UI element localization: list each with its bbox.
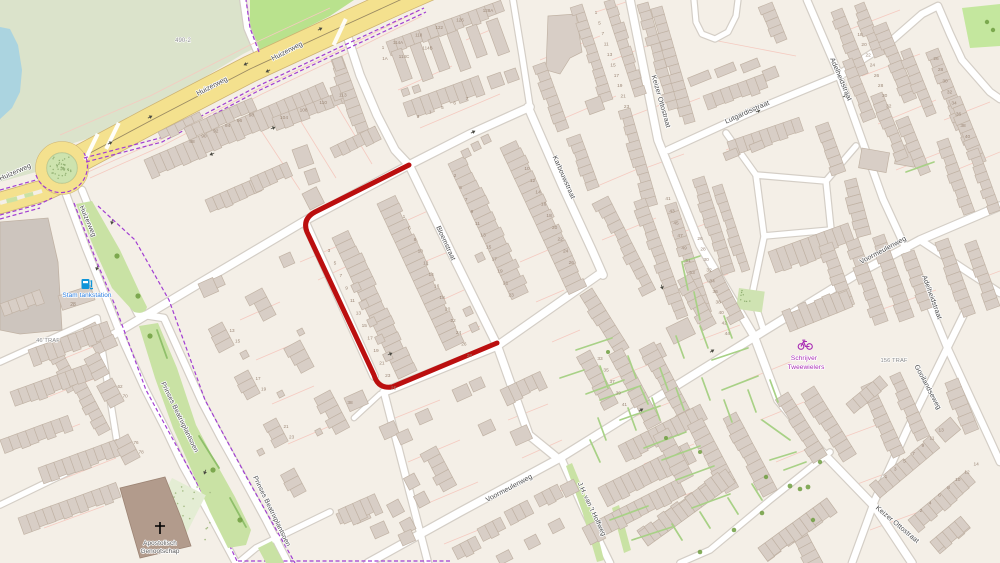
svg-text:41: 41 bbox=[665, 196, 671, 202]
svg-text:94: 94 bbox=[225, 123, 231, 129]
svg-text:114B: 114B bbox=[422, 45, 432, 50]
svg-text:113: 113 bbox=[339, 92, 347, 98]
svg-text:2: 2 bbox=[920, 508, 923, 514]
svg-text:70: 70 bbox=[123, 394, 129, 399]
svg-text:20: 20 bbox=[552, 225, 558, 231]
svg-text:118: 118 bbox=[415, 33, 423, 38]
svg-text:1: 1 bbox=[595, 10, 598, 16]
svg-text:90: 90 bbox=[201, 134, 207, 140]
svg-text:19: 19 bbox=[261, 387, 267, 392]
svg-text:110: 110 bbox=[319, 100, 327, 106]
svg-text:15: 15 bbox=[235, 339, 241, 344]
svg-text:35: 35 bbox=[603, 368, 609, 374]
svg-text:9: 9 bbox=[345, 286, 348, 292]
svg-text:26: 26 bbox=[697, 236, 703, 242]
svg-text:41: 41 bbox=[622, 402, 628, 408]
svg-text:17: 17 bbox=[614, 73, 620, 79]
svg-text:11: 11 bbox=[475, 221, 480, 227]
svg-text:38: 38 bbox=[347, 400, 353, 406]
svg-text:98: 98 bbox=[249, 113, 255, 119]
svg-text:45: 45 bbox=[673, 221, 679, 227]
svg-text:4: 4 bbox=[929, 500, 932, 506]
svg-text:32: 32 bbox=[886, 103, 892, 109]
svg-text:7: 7 bbox=[601, 31, 604, 37]
svg-text:19: 19 bbox=[373, 348, 379, 354]
svg-text:1: 1 bbox=[885, 474, 888, 480]
svg-text:17: 17 bbox=[367, 335, 373, 341]
svg-text:18: 18 bbox=[546, 213, 552, 219]
svg-text:126: 126 bbox=[456, 17, 464, 22]
svg-text:14: 14 bbox=[974, 462, 980, 468]
svg-text:21: 21 bbox=[621, 94, 627, 100]
svg-text:9: 9 bbox=[921, 443, 924, 449]
svg-text:15: 15 bbox=[486, 245, 492, 251]
svg-text:23: 23 bbox=[624, 104, 630, 110]
svg-text:28: 28 bbox=[938, 67, 944, 73]
svg-text:Apostolisch: Apostolisch bbox=[143, 540, 177, 547]
svg-text:38: 38 bbox=[960, 123, 966, 129]
svg-text:28: 28 bbox=[700, 247, 706, 253]
svg-text:12: 12 bbox=[530, 178, 536, 184]
svg-text:21: 21 bbox=[283, 424, 289, 429]
svg-text:30: 30 bbox=[942, 78, 948, 84]
svg-text:11: 11 bbox=[350, 298, 355, 304]
svg-text:1A: 1A bbox=[382, 56, 388, 61]
svg-text:Schrijver: Schrijver bbox=[791, 355, 818, 362]
svg-text:5: 5 bbox=[903, 459, 906, 465]
svg-text:23: 23 bbox=[289, 435, 295, 440]
svg-text:23: 23 bbox=[509, 292, 515, 298]
svg-text:22: 22 bbox=[866, 52, 872, 58]
svg-text:12: 12 bbox=[423, 260, 429, 266]
svg-text:88: 88 bbox=[189, 139, 195, 145]
svg-text:32: 32 bbox=[706, 268, 712, 274]
svg-text:156 TRAF: 156 TRAF bbox=[880, 358, 907, 364]
svg-text:13: 13 bbox=[356, 310, 362, 316]
svg-text:28: 28 bbox=[467, 353, 473, 359]
svg-text:19: 19 bbox=[617, 83, 623, 89]
svg-text:30: 30 bbox=[882, 93, 888, 99]
svg-text:6: 6 bbox=[408, 226, 411, 232]
svg-text:13: 13 bbox=[229, 328, 235, 333]
svg-text:22: 22 bbox=[558, 237, 564, 243]
svg-text:6: 6 bbox=[938, 493, 941, 499]
svg-text:7: 7 bbox=[912, 451, 915, 457]
svg-text:78: 78 bbox=[139, 450, 145, 455]
svg-text:7: 7 bbox=[465, 197, 468, 203]
svg-text:28: 28 bbox=[70, 302, 76, 308]
svg-text:8: 8 bbox=[414, 237, 417, 243]
svg-text:96: 96 bbox=[237, 118, 243, 124]
svg-text:7: 7 bbox=[339, 273, 342, 279]
svg-text:49: 49 bbox=[681, 246, 687, 252]
svg-text:24: 24 bbox=[870, 63, 876, 69]
svg-text:13: 13 bbox=[607, 52, 613, 58]
svg-text:43: 43 bbox=[669, 208, 675, 214]
svg-text:15: 15 bbox=[610, 62, 616, 68]
svg-text:6: 6 bbox=[453, 101, 456, 106]
svg-text:40: 40 bbox=[965, 134, 971, 140]
svg-text:19: 19 bbox=[497, 269, 503, 275]
svg-text:34: 34 bbox=[951, 101, 957, 107]
svg-text:39: 39 bbox=[616, 390, 622, 396]
svg-text:15: 15 bbox=[362, 323, 368, 329]
svg-text:92: 92 bbox=[213, 128, 219, 134]
svg-text:44: 44 bbox=[725, 331, 731, 337]
svg-text:22: 22 bbox=[450, 318, 456, 324]
svg-text:24: 24 bbox=[456, 330, 462, 336]
svg-text:3: 3 bbox=[417, 114, 420, 119]
svg-text:122: 122 bbox=[436, 25, 444, 30]
svg-text:37: 37 bbox=[610, 379, 616, 385]
svg-text:53: 53 bbox=[689, 270, 695, 276]
svg-text:47: 47 bbox=[677, 233, 683, 239]
svg-text:16: 16 bbox=[541, 201, 547, 207]
svg-text:10: 10 bbox=[418, 249, 424, 255]
svg-text:26: 26 bbox=[569, 260, 575, 266]
svg-text:26: 26 bbox=[933, 56, 939, 62]
svg-text:17: 17 bbox=[255, 376, 261, 381]
svg-text:26: 26 bbox=[874, 73, 880, 79]
svg-text:13: 13 bbox=[480, 233, 486, 239]
svg-text:62: 62 bbox=[117, 384, 123, 389]
svg-text:Stam tankstation: Stam tankstation bbox=[62, 292, 112, 299]
svg-text:104: 104 bbox=[280, 115, 288, 121]
svg-text:9: 9 bbox=[471, 209, 474, 215]
svg-text:128A: 128A bbox=[483, 8, 494, 13]
svg-text:Tweewielers: Tweewielers bbox=[788, 364, 826, 371]
svg-text:23: 23 bbox=[385, 373, 391, 379]
svg-text:12: 12 bbox=[964, 469, 970, 475]
svg-text:5: 5 bbox=[459, 185, 462, 191]
svg-text:51: 51 bbox=[685, 258, 691, 264]
svg-text:32: 32 bbox=[947, 89, 953, 95]
svg-text:42: 42 bbox=[722, 321, 728, 327]
svg-text:3: 3 bbox=[894, 466, 897, 472]
svg-text:3: 3 bbox=[328, 248, 331, 254]
svg-text:34: 34 bbox=[709, 278, 715, 284]
svg-text:38: 38 bbox=[716, 299, 722, 305]
svg-text:5: 5 bbox=[598, 21, 601, 27]
svg-text:20: 20 bbox=[445, 307, 451, 313]
svg-text:36: 36 bbox=[713, 289, 719, 295]
svg-text:24: 24 bbox=[563, 248, 569, 254]
svg-text:18: 18 bbox=[439, 295, 445, 301]
svg-text:20: 20 bbox=[861, 42, 867, 48]
svg-text:10: 10 bbox=[955, 477, 961, 483]
svg-text:14: 14 bbox=[535, 190, 541, 196]
svg-text:11: 11 bbox=[930, 435, 935, 441]
svg-text:36: 36 bbox=[956, 112, 962, 118]
svg-text:7: 7 bbox=[466, 96, 469, 101]
svg-text:21: 21 bbox=[379, 360, 385, 366]
svg-text:18: 18 bbox=[857, 32, 863, 38]
svg-text:8: 8 bbox=[947, 485, 950, 491]
svg-text:11: 11 bbox=[604, 41, 609, 47]
svg-text:114C: 114C bbox=[399, 54, 410, 59]
svg-text:16: 16 bbox=[434, 284, 440, 290]
svg-text:10: 10 bbox=[524, 166, 530, 172]
svg-text:1: 1 bbox=[403, 214, 406, 220]
svg-text:46 TRAF: 46 TRAF bbox=[36, 338, 60, 344]
svg-text:26: 26 bbox=[461, 341, 467, 347]
svg-text:490-2: 490-2 bbox=[175, 38, 191, 44]
svg-text:2: 2 bbox=[454, 173, 457, 179]
svg-text:76: 76 bbox=[133, 440, 139, 445]
svg-text:5: 5 bbox=[441, 105, 444, 110]
svg-text:30: 30 bbox=[703, 257, 709, 263]
svg-text:28: 28 bbox=[878, 83, 884, 89]
svg-text:Genootschap: Genootschap bbox=[140, 548, 179, 555]
svg-text:21: 21 bbox=[503, 281, 509, 287]
svg-text:17: 17 bbox=[492, 257, 498, 263]
svg-text:40: 40 bbox=[719, 310, 725, 316]
svg-text:108: 108 bbox=[300, 108, 308, 114]
svg-text:5: 5 bbox=[334, 261, 337, 267]
svg-text:33: 33 bbox=[597, 356, 603, 362]
svg-text:14: 14 bbox=[429, 272, 435, 278]
svg-text:1: 1 bbox=[429, 110, 432, 115]
svg-text:25: 25 bbox=[391, 385, 397, 391]
svg-text:13: 13 bbox=[939, 428, 945, 434]
svg-text:114A: 114A bbox=[393, 40, 403, 45]
